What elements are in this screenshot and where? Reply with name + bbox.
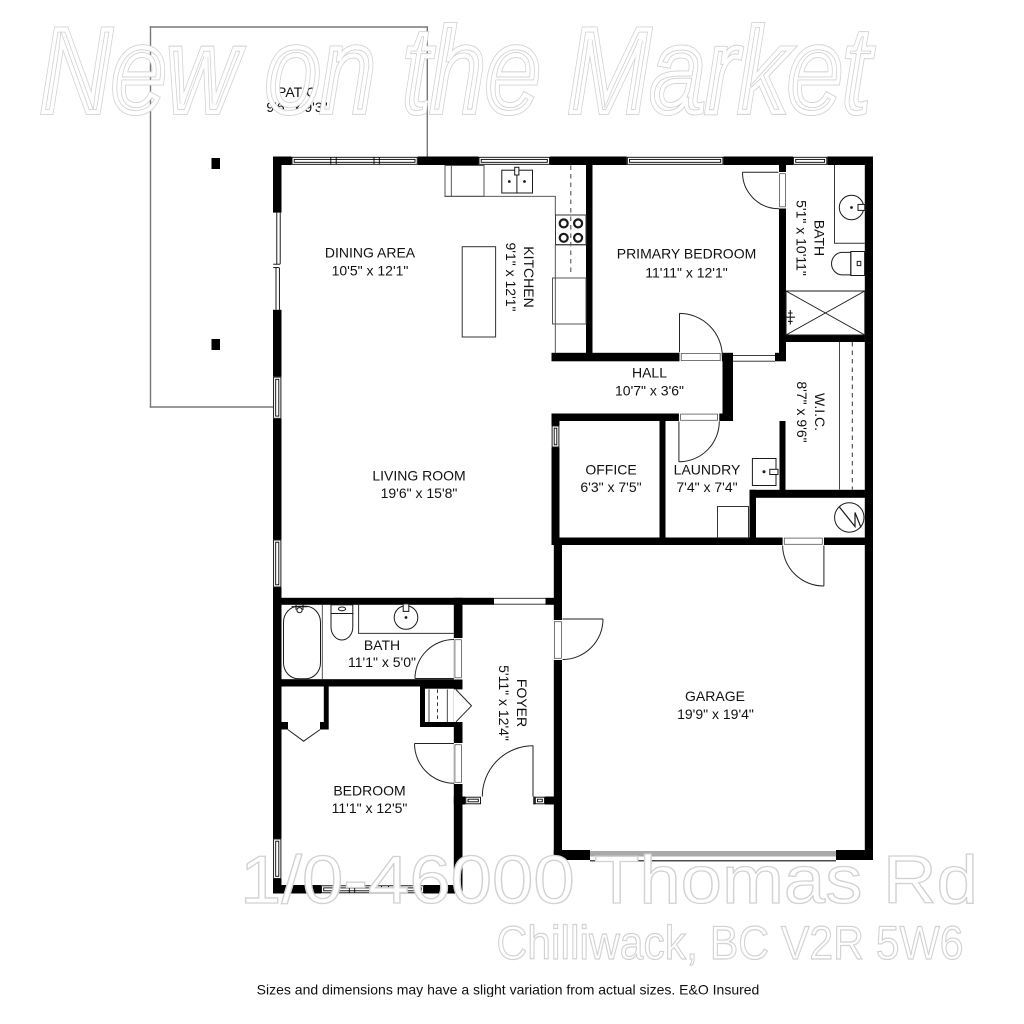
svg-text:W.I.C.: W.I.C. xyxy=(812,393,828,431)
svg-text:Chilliwack, BC V2R 5W6: Chilliwack, BC V2R 5W6 xyxy=(497,916,964,969)
svg-text:19'9" x 19'4": 19'9" x 19'4" xyxy=(677,706,754,722)
svg-text:OFFICE: OFFICE xyxy=(585,462,636,478)
svg-text:New on the Market: New on the Market xyxy=(40,4,874,138)
svg-text:9'1" x 12'1": 9'1" x 12'1" xyxy=(503,243,519,312)
svg-text:BEDROOM: BEDROOM xyxy=(333,783,405,799)
svg-text:5'1" x 10'11": 5'1" x 10'11" xyxy=(794,200,810,276)
svg-text:6'3" x 7'5": 6'3" x 7'5" xyxy=(580,479,641,495)
svg-text:10'7" x 3'6": 10'7" x 3'6" xyxy=(615,382,684,398)
svg-text:BATH: BATH xyxy=(812,220,828,256)
svg-text:PRIMARY BEDROOM: PRIMARY BEDROOM xyxy=(617,246,757,262)
svg-text:11'1" x 12'5": 11'1" x 12'5" xyxy=(332,800,408,816)
svg-text:KITCHEN: KITCHEN xyxy=(521,246,537,307)
svg-text:1/0-46000 Thomas Rd: 1/0-46000 Thomas Rd xyxy=(240,842,978,918)
svg-text:11'1" x 5'0": 11'1" x 5'0" xyxy=(348,654,416,670)
svg-text:19'6" x 15'8": 19'6" x 15'8" xyxy=(381,485,458,501)
svg-text:7'4" x 7'4": 7'4" x 7'4" xyxy=(676,479,737,495)
svg-text:Sizes and dimensions may have: Sizes and dimensions may have a slight v… xyxy=(257,982,760,998)
svg-text:10'5" x 12'1": 10'5" x 12'1" xyxy=(332,263,409,279)
svg-text:LIVING ROOM: LIVING ROOM xyxy=(372,468,465,484)
svg-text:HALL: HALL xyxy=(632,365,667,381)
svg-text:11'11" x 12'1": 11'11" x 12'1" xyxy=(645,265,728,281)
svg-text:DINING AREA: DINING AREA xyxy=(325,245,416,261)
svg-text:5'11" x 12'4": 5'11" x 12'4" xyxy=(496,665,512,741)
svg-text:BATH: BATH xyxy=(364,637,400,653)
svg-text:GARAGE: GARAGE xyxy=(685,688,745,704)
svg-text:8'7" x 9'6": 8'7" x 9'6" xyxy=(794,381,810,442)
svg-text:FOYER: FOYER xyxy=(514,679,530,727)
svg-text:LAUNDRY: LAUNDRY xyxy=(674,462,741,478)
